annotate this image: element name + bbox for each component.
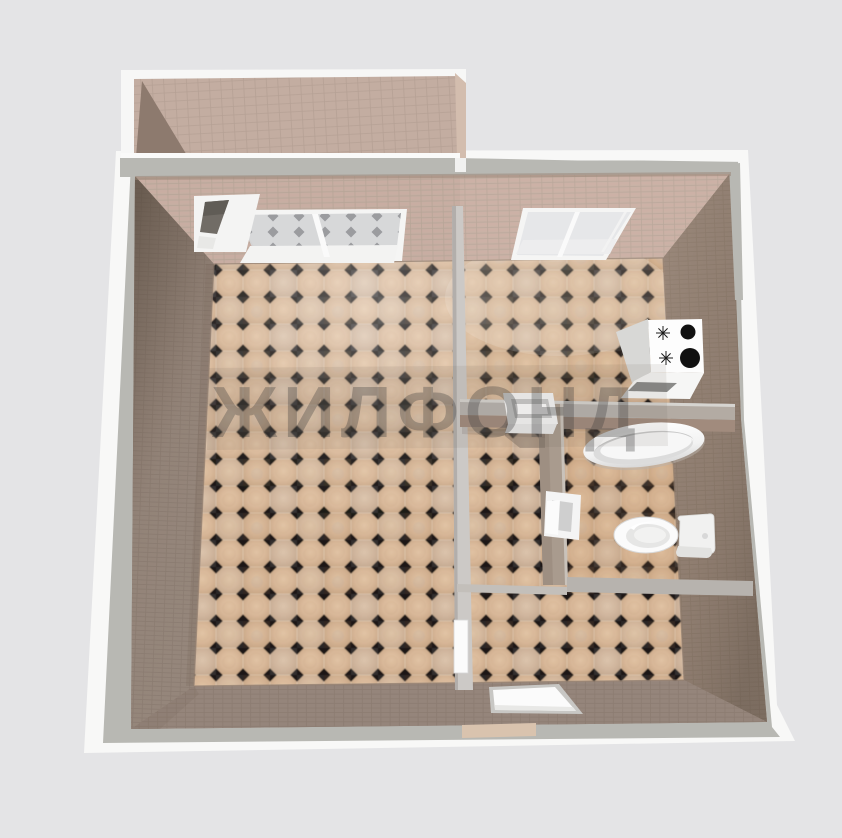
- svg-text:ЖИЛФОНД: ЖИЛФОНД: [211, 373, 642, 453]
